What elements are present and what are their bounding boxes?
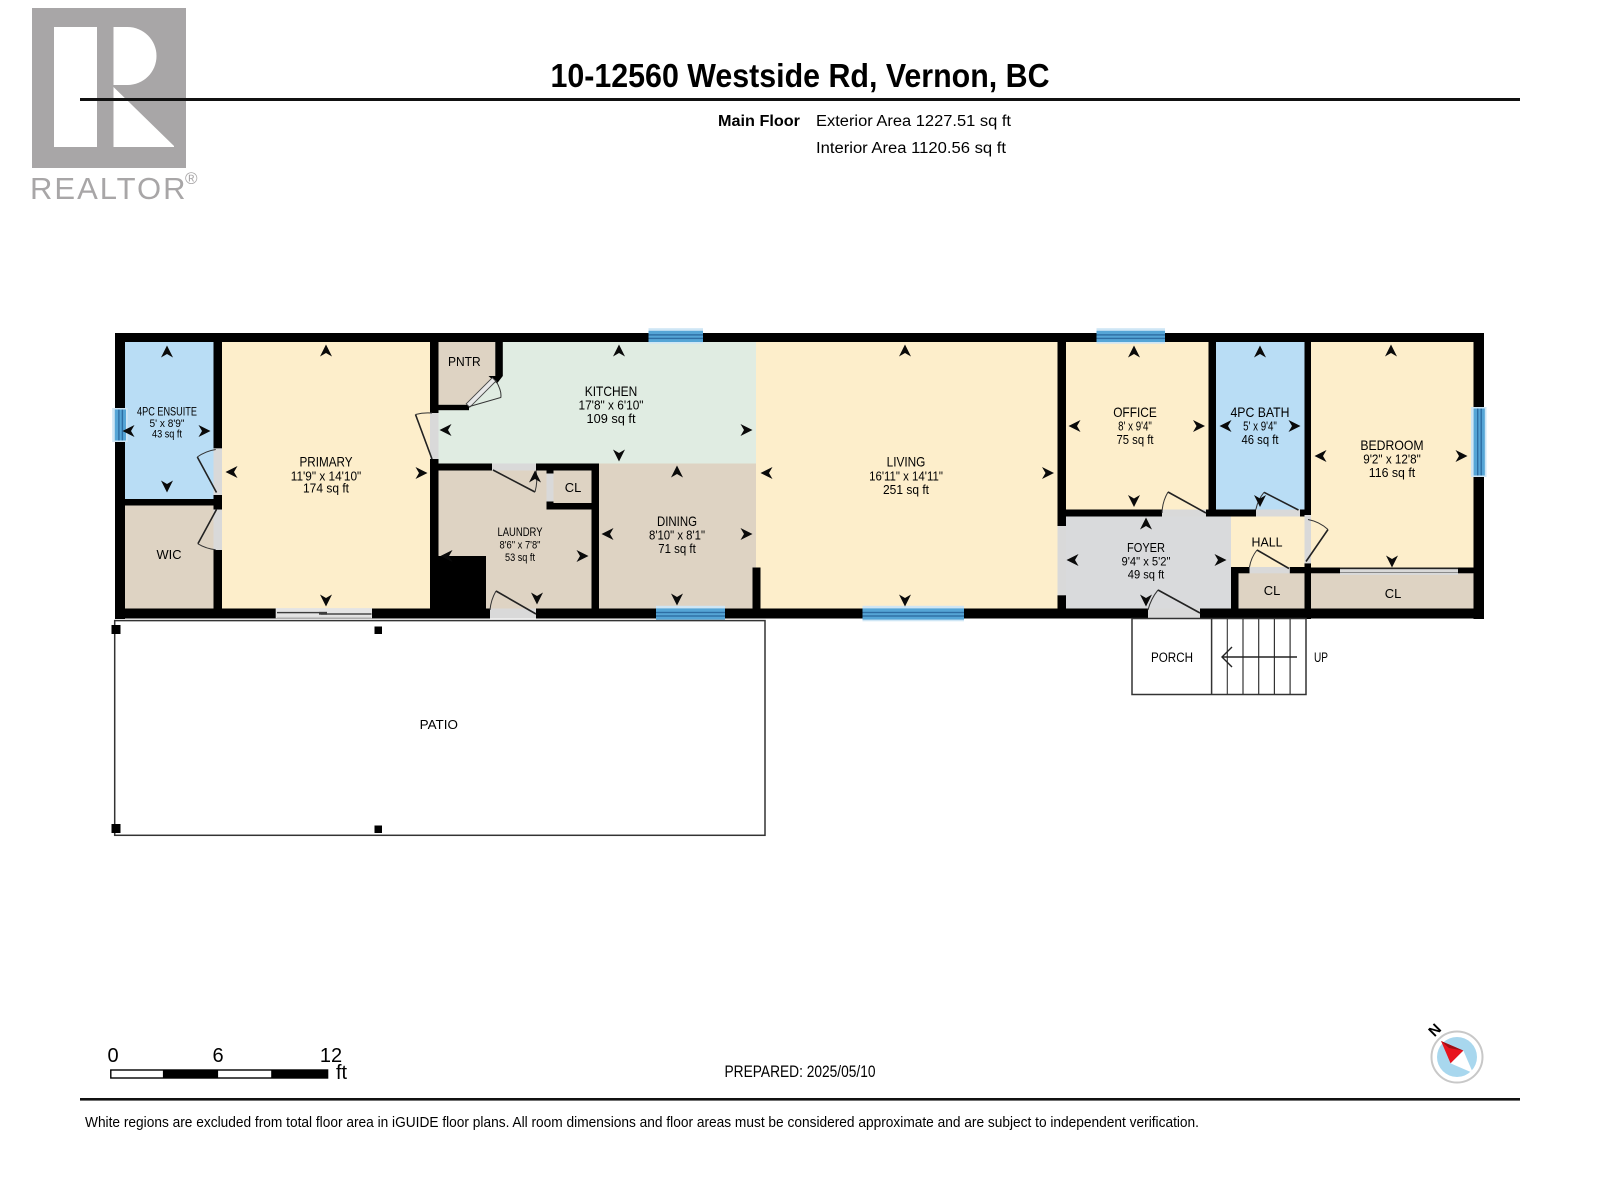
svg-text:PATIO: PATIO	[420, 717, 458, 732]
svg-text:CL: CL	[565, 481, 582, 495]
svg-text:10-12560 Westside Rd, Vernon,: 10-12560 Westside Rd, Vernon, BC	[551, 57, 1050, 94]
svg-text:CL: CL	[1385, 587, 1402, 601]
svg-text:6: 6	[212, 1045, 223, 1067]
svg-text:8'6" x 7'8": 8'6" x 7'8"	[500, 540, 541, 552]
svg-text:LIVING: LIVING	[887, 454, 926, 470]
svg-text:®: ®	[185, 169, 198, 188]
svg-text:FOYER: FOYER	[1127, 540, 1165, 555]
svg-text:174 sq ft: 174 sq ft	[303, 481, 349, 496]
svg-text:71 sq ft: 71 sq ft	[658, 541, 696, 556]
svg-text:251 sq ft: 251 sq ft	[883, 482, 929, 497]
svg-text:HALL: HALL	[1252, 535, 1283, 550]
svg-text:43 sq ft: 43 sq ft	[152, 429, 182, 441]
svg-text:CL: CL	[1264, 584, 1281, 598]
svg-text:ft: ft	[336, 1062, 348, 1084]
svg-text:Interior Area 1120.56 sq ft: Interior Area 1120.56 sq ft	[816, 140, 1007, 157]
svg-text:9'4" x 5'2": 9'4" x 5'2"	[1122, 555, 1171, 569]
svg-text:LAUNDRY: LAUNDRY	[498, 527, 543, 539]
svg-text:UP: UP	[1314, 650, 1328, 665]
svg-text:PNTR: PNTR	[448, 354, 481, 369]
svg-text:116 sq ft: 116 sq ft	[1369, 465, 1416, 480]
svg-text:0: 0	[107, 1045, 118, 1067]
svg-text:Exterior Area 1227.51 sq ft: Exterior Area 1227.51 sq ft	[816, 113, 1012, 130]
svg-text:46 sq ft: 46 sq ft	[1242, 432, 1279, 447]
svg-text:PORCH: PORCH	[1151, 650, 1193, 665]
svg-text:REALTOR: REALTOR	[30, 171, 188, 206]
svg-text:PRIMARY: PRIMARY	[300, 454, 354, 470]
svg-text:PREPARED: 2025/05/10: PREPARED: 2025/05/10	[725, 1062, 876, 1081]
svg-text:109 sq ft: 109 sq ft	[587, 411, 636, 426]
svg-text:WIC: WIC	[157, 547, 182, 562]
svg-text:4PC ENSUITE: 4PC ENSUITE	[137, 407, 197, 419]
svg-text:White regions are excluded fro: White regions are excluded from total fl…	[85, 1114, 1199, 1131]
svg-text:49 sq ft: 49 sq ft	[1128, 568, 1165, 582]
svg-text:Main Floor: Main Floor	[718, 113, 800, 130]
svg-text:53 sq ft: 53 sq ft	[505, 552, 535, 564]
svg-text:75 sq ft: 75 sq ft	[1117, 432, 1154, 447]
